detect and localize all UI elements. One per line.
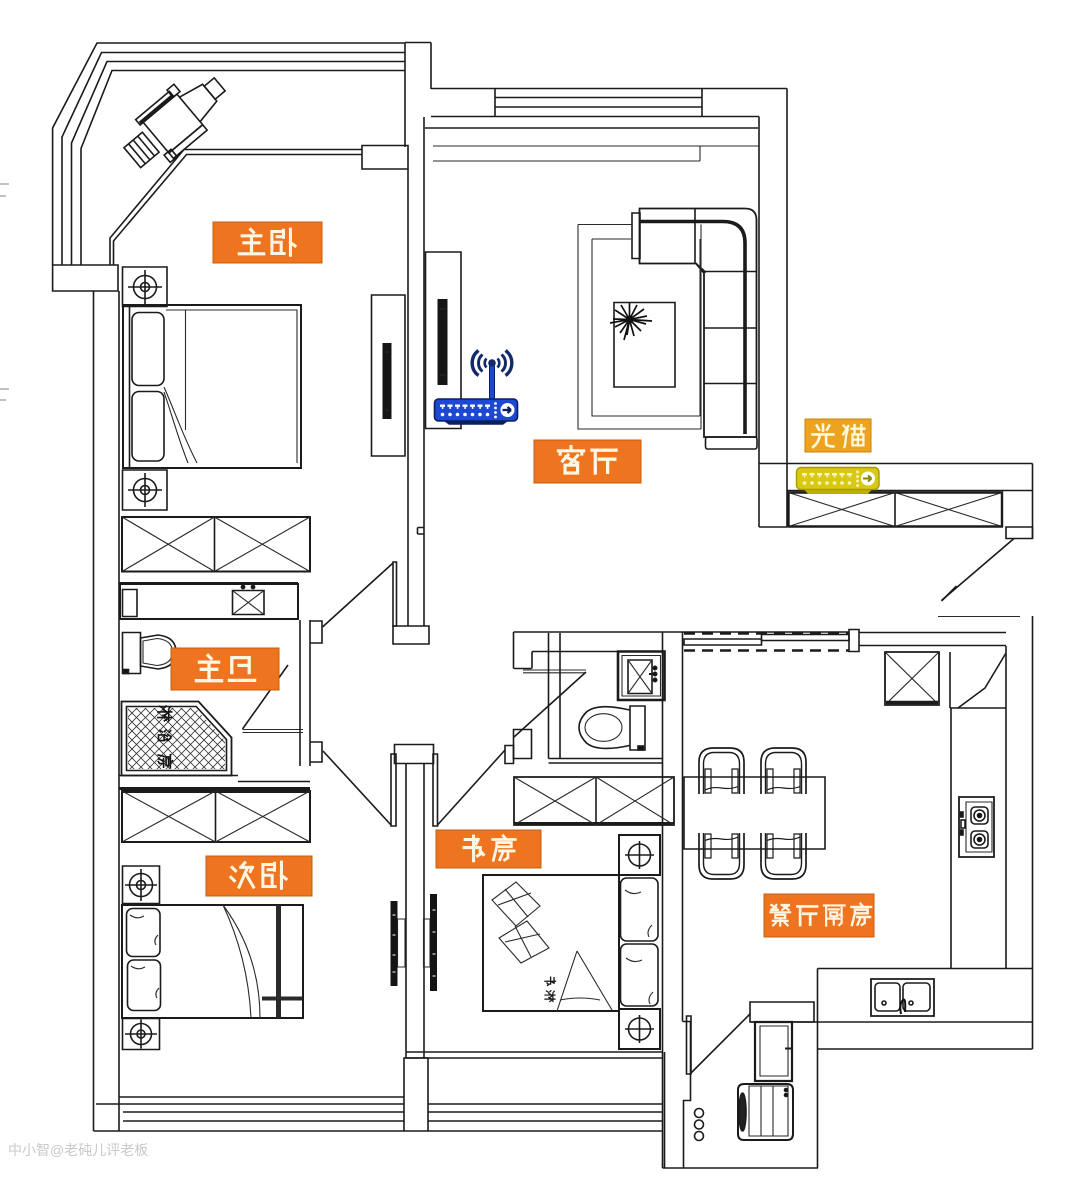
svg-text:中小智@老砘儿评老板: 中小智@老砘儿评老板 [8,1142,148,1158]
